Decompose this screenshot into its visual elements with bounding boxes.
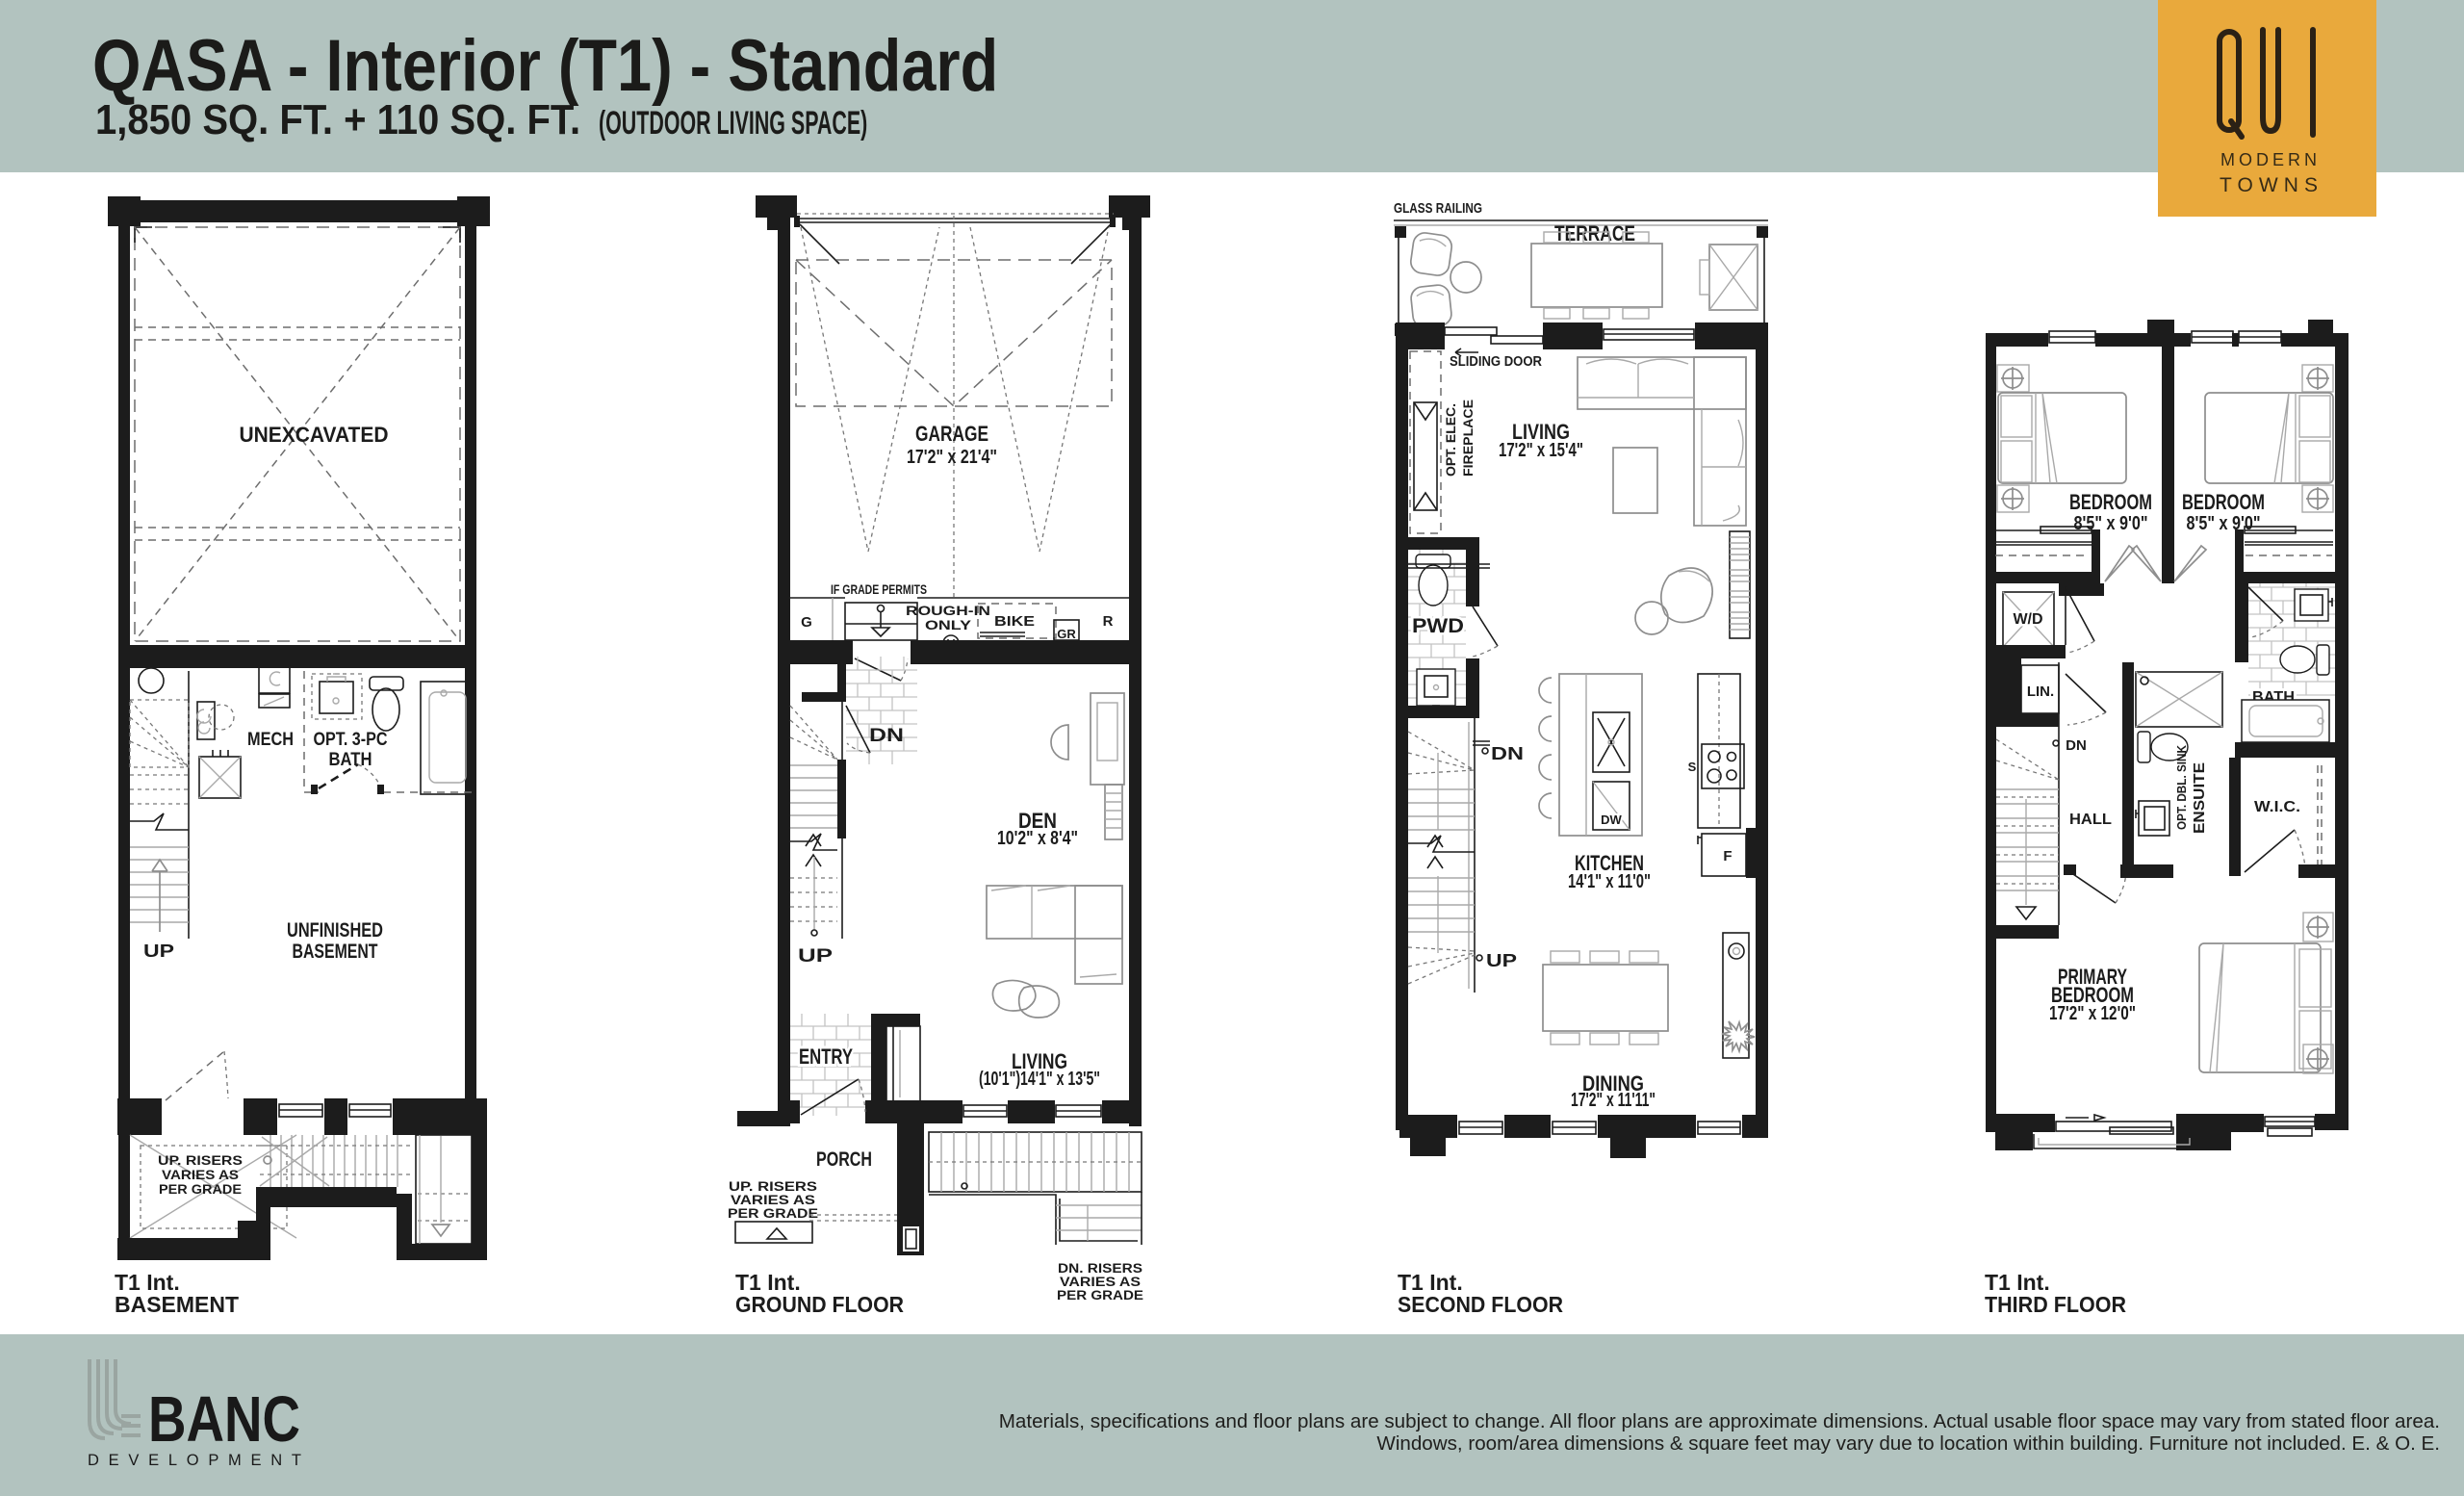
- svg-text:F: F: [1723, 848, 1732, 864]
- svg-text:14'1" x 11'0": 14'1" x 11'0": [1568, 871, 1651, 892]
- svg-text:UNFINISHED: UNFINISHED: [287, 919, 383, 941]
- svg-text:VARIES AS: VARIES AS: [731, 1193, 815, 1207]
- svg-text:THIRD FLOOR: THIRD FLOOR: [1985, 1292, 2126, 1317]
- svg-text:UP: UP: [1486, 951, 1517, 970]
- svg-text:MECH: MECH: [247, 730, 294, 750]
- svg-text:PORCH: PORCH: [816, 1148, 872, 1171]
- svg-text:10'2" x 8'4": 10'2" x 8'4": [997, 828, 1078, 849]
- svg-text:ENTRY: ENTRY: [799, 1045, 853, 1069]
- svg-text:DN: DN: [869, 726, 904, 746]
- svg-text:GROUND FLOOR: GROUND FLOOR: [735, 1292, 904, 1317]
- svg-text:BEDROOM: BEDROOM: [2069, 490, 2152, 514]
- svg-text:DN. RISERS: DN. RISERS: [1058, 1261, 1142, 1276]
- svg-text:17'2" x 12'0": 17'2" x 12'0": [2049, 1003, 2136, 1024]
- svg-text:FIREPLACE: FIREPLACE: [1461, 400, 1476, 477]
- svg-text:UP. RISERS: UP. RISERS: [729, 1179, 817, 1194]
- svg-text:PER GRADE: PER GRADE: [728, 1206, 818, 1221]
- svg-text:S: S: [1688, 760, 1697, 774]
- svg-text:BASEMENT: BASEMENT: [115, 1292, 239, 1317]
- svg-text:GLASS RAILING: GLASS RAILING: [1394, 200, 1482, 217]
- svg-text:HALL: HALL: [2069, 812, 2112, 828]
- svg-text:VARIES AS: VARIES AS: [162, 1168, 239, 1182]
- svg-text:17'2" x 11'11": 17'2" x 11'11": [1571, 1090, 1655, 1111]
- svg-text:G: G: [801, 614, 812, 631]
- svg-text:BIKE: BIKE: [994, 613, 1035, 630]
- svg-text:W.I.C.: W.I.C.: [2254, 799, 2300, 815]
- svg-text:IF GRADE PERMITS: IF GRADE PERMITS: [831, 581, 927, 597]
- svg-text:ENSUITE: ENSUITE: [2192, 762, 2208, 834]
- svg-text:OPT. DBL. SINK: OPT. DBL. SINK: [2175, 745, 2189, 830]
- svg-text:UNEXCAVATED: UNEXCAVATED: [240, 423, 389, 447]
- svg-text:VARIES AS: VARIES AS: [1060, 1275, 1141, 1289]
- svg-text:DW: DW: [1601, 812, 1622, 827]
- svg-text:UP. RISERS: UP. RISERS: [158, 1153, 243, 1168]
- svg-text:ONLY: ONLY: [925, 617, 972, 632]
- svg-text:BATH: BATH: [329, 750, 372, 770]
- svg-text:UP: UP: [143, 941, 174, 961]
- svg-text:BEDROOM: BEDROOM: [2182, 490, 2265, 514]
- svg-text:DN: DN: [2066, 737, 2087, 754]
- svg-text:UP: UP: [798, 946, 833, 967]
- svg-text:GARAGE: GARAGE: [915, 422, 988, 446]
- svg-text:PER GRADE: PER GRADE: [159, 1182, 242, 1197]
- svg-text:LIN.: LIN.: [2027, 684, 2054, 700]
- svg-text:BASEMENT: BASEMENT: [293, 941, 378, 963]
- svg-text:DN: DN: [1491, 744, 1524, 763]
- svg-text:(10'1")14'1" x 13'5": (10'1")14'1" x 13'5": [979, 1069, 1100, 1090]
- svg-text:SECOND FLOOR: SECOND FLOOR: [1398, 1292, 1563, 1317]
- svg-text:PER GRADE: PER GRADE: [1057, 1288, 1143, 1303]
- svg-text:W/D: W/D: [2013, 611, 2042, 628]
- svg-text:R: R: [1103, 613, 1114, 630]
- svg-text:SLIDING DOOR: SLIDING DOOR: [1450, 354, 1542, 370]
- svg-text:PWD: PWD: [1412, 615, 1464, 637]
- svg-text:OPT. 3-PC: OPT. 3-PC: [314, 730, 388, 750]
- svg-text:17'2" x 15'4": 17'2" x 15'4": [1499, 440, 1583, 461]
- svg-text:17'2" x 21'4": 17'2" x 21'4": [907, 447, 997, 468]
- svg-text:GR: GR: [1057, 627, 1076, 641]
- svg-text:OPT. ELEC.: OPT. ELEC.: [1444, 403, 1458, 477]
